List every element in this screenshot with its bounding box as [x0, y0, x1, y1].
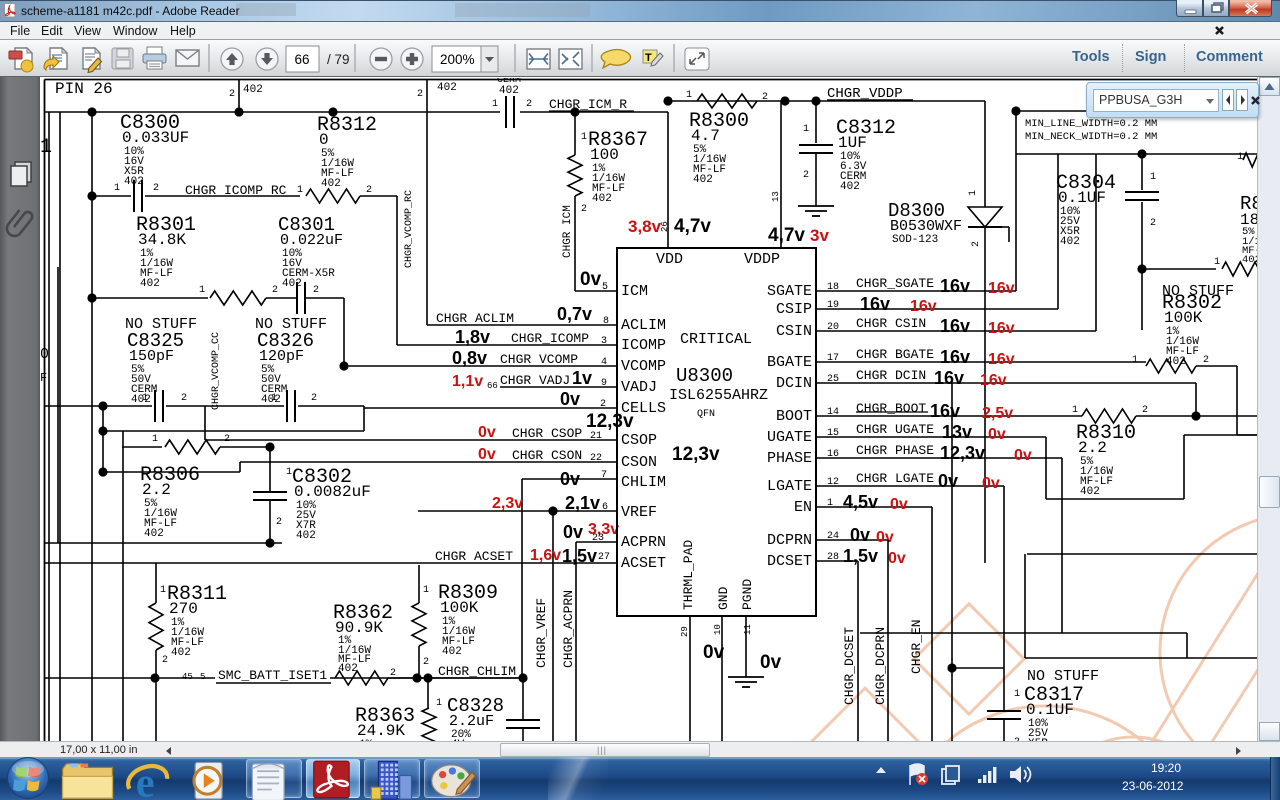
svg-text:SGATE: SGATE	[767, 283, 812, 300]
svg-text:0v: 0v	[938, 471, 958, 491]
svg-text:EN: EN	[794, 499, 812, 516]
svg-text:5: 5	[200, 672, 205, 682]
svg-text:2: 2	[224, 434, 230, 445]
svg-text:2: 2	[276, 517, 282, 528]
svg-text:2,1v: 2,1v	[565, 493, 600, 513]
svg-text:2: 2	[581, 204, 587, 215]
svg-text:5: 5	[602, 282, 608, 293]
svg-text:0v: 0v	[478, 424, 496, 441]
svg-text:0v: 0v	[1014, 447, 1032, 464]
svg-text:MIN_NECK_WIDTH=0.2 MM: MIN_NECK_WIDTH=0.2 MM	[1025, 131, 1157, 143]
svg-text:2: 2	[1203, 355, 1209, 366]
svg-text:16v: 16v	[988, 351, 1015, 368]
svg-text:1: 1	[1150, 172, 1156, 183]
svg-text:CHGR ICM: CHGR ICM	[562, 205, 574, 258]
svg-text:CHGR VCOMP: CHGR VCOMP	[500, 352, 578, 367]
svg-text:0v: 0v	[988, 426, 1006, 443]
svg-text:CHGR_BOOT: CHGR_BOOT	[856, 401, 926, 416]
svg-text:VCOMP: VCOMP	[621, 358, 666, 375]
svg-text:29: 29	[680, 626, 690, 637]
svg-text:100K: 100K	[1164, 309, 1203, 327]
svg-text:9: 9	[601, 378, 607, 389]
svg-text:16v: 16v	[940, 316, 970, 336]
svg-text:16v: 16v	[940, 347, 970, 367]
svg-text:2: 2	[313, 285, 319, 296]
svg-text:CHGR ACSET: CHGR ACSET	[435, 549, 513, 564]
svg-text:2: 2	[526, 99, 532, 110]
svg-text:200%: 200%	[440, 52, 475, 67]
svg-text:1: 1	[1237, 152, 1243, 163]
svg-text:1,5v: 1,5v	[843, 546, 878, 566]
svg-text:120pF: 120pF	[259, 348, 304, 365]
svg-text:4,7v: 4,7v	[768, 225, 805, 246]
svg-text:0v: 0v	[888, 550, 906, 567]
svg-text:ACLIM: ACLIM	[621, 317, 666, 334]
svg-text:CHGR CSOP: CHGR CSOP	[512, 426, 582, 441]
svg-text:CHGR LGATE: CHGR LGATE	[856, 471, 934, 486]
svg-text:2,5v: 2,5v	[982, 405, 1013, 422]
svg-text:B0530WXF: B0530WXF	[890, 218, 962, 235]
svg-text:13v: 13v	[942, 422, 972, 442]
svg-text:4,7v: 4,7v	[674, 216, 711, 237]
svg-text:2: 2	[417, 89, 423, 100]
svg-text:16v: 16v	[980, 372, 1007, 389]
svg-text:CHGR_EN: CHGR_EN	[909, 619, 924, 674]
svg-text:CHGR VADJ: CHGR VADJ	[500, 373, 570, 388]
svg-text:27: 27	[598, 552, 610, 563]
svg-text:CHGR_DCPRN: CHGR_DCPRN	[873, 627, 888, 705]
svg-text:16v: 16v	[940, 276, 970, 296]
svg-text:1: 1	[160, 585, 166, 596]
svg-text:CRITICAL: CRITICAL	[680, 331, 752, 348]
svg-text:1: 1	[423, 585, 429, 596]
svg-text:CHGR_SGATE: CHGR_SGATE	[856, 276, 934, 291]
svg-text:16v: 16v	[988, 280, 1015, 297]
svg-text:CHGR_VCOMP_CC: CHGR_VCOMP_CC	[211, 332, 222, 410]
svg-text:402: 402	[296, 530, 316, 542]
svg-text:100: 100	[590, 146, 619, 164]
svg-text:CHGR_VCOMP_RC: CHGR_VCOMP_RC	[404, 190, 415, 268]
svg-text:0.0082uF: 0.0082uF	[294, 483, 371, 501]
svg-text:0v: 0v	[890, 496, 908, 513]
svg-text:16v: 16v	[930, 401, 960, 421]
svg-text:VDDP: VDDP	[744, 251, 780, 268]
svg-text:402: 402	[499, 85, 519, 97]
svg-text:16v: 16v	[988, 320, 1015, 337]
svg-text:VADJ: VADJ	[621, 379, 657, 396]
svg-text:0.033UF: 0.033UF	[122, 129, 189, 147]
svg-text:2,3v: 2,3v	[492, 495, 523, 512]
svg-text:UGATE: UGATE	[767, 429, 812, 446]
svg-text:DCPRN: DCPRN	[767, 532, 812, 549]
svg-text:CHGR CSIN: CHGR CSIN	[856, 316, 926, 331]
svg-text:ISL6255AHRZ: ISL6255AHRZ	[669, 387, 768, 404]
svg-text:402: 402	[693, 174, 713, 186]
svg-text:150pF: 150pF	[129, 348, 174, 365]
svg-text:2: 2	[162, 655, 168, 666]
svg-text:CSOP: CSOP	[621, 432, 657, 449]
svg-text:8: 8	[603, 316, 609, 327]
svg-text:7: 7	[601, 470, 607, 481]
svg-text:1,5v: 1,5v	[562, 546, 597, 566]
svg-text:4,5v: 4,5v	[843, 492, 878, 512]
svg-text:PHASE: PHASE	[767, 450, 812, 467]
svg-text:1: 1	[199, 285, 205, 296]
svg-text:4: 4	[601, 357, 607, 368]
svg-text:ICOMP: ICOMP	[621, 337, 666, 354]
svg-text:2.2: 2.2	[142, 481, 171, 499]
svg-text:ACSET: ACSET	[621, 555, 666, 572]
svg-text:2.2: 2.2	[1078, 439, 1107, 457]
svg-text:402: 402	[1080, 486, 1100, 498]
svg-text:1: 1	[581, 132, 587, 143]
svg-text:1: 1	[1214, 257, 1220, 268]
svg-text:1: 1	[1014, 689, 1020, 700]
svg-text:402: 402	[840, 181, 860, 193]
svg-text:CHGR_ICM_R: CHGR_ICM_R	[549, 97, 627, 112]
svg-text:DCSET: DCSET	[767, 553, 812, 570]
svg-text:12,3v: 12,3v	[940, 443, 985, 463]
svg-text:0v: 0v	[982, 475, 1000, 492]
svg-text:402: 402	[282, 278, 302, 290]
svg-text:13: 13	[771, 191, 781, 202]
svg-text:1: 1	[686, 90, 692, 101]
svg-text:CSON: CSON	[621, 454, 657, 471]
svg-text:2: 2	[366, 185, 372, 196]
svg-text:0: 0	[319, 131, 329, 149]
svg-text:26: 26	[660, 221, 670, 232]
svg-text:24.9K: 24.9K	[357, 722, 405, 740]
svg-text:DCIN: DCIN	[776, 375, 812, 392]
svg-text:3: 3	[601, 336, 607, 347]
svg-text:THRML_PAD: THRML_PAD	[681, 540, 696, 610]
svg-text:ICM: ICM	[621, 283, 648, 300]
svg-text:0.1UF: 0.1UF	[1058, 189, 1106, 207]
svg-text:0,7v: 0,7v	[557, 304, 592, 324]
svg-text:23: 23	[592, 533, 604, 544]
svg-text:0v: 0v	[580, 269, 602, 290]
svg-text:CHGR ACLIM: CHGR ACLIM	[436, 311, 514, 326]
svg-text:/ 79: / 79	[327, 52, 350, 67]
svg-text:3,8v: 3,8v	[628, 217, 662, 236]
svg-text:0v: 0v	[560, 469, 580, 489]
svg-text:16v: 16v	[934, 368, 964, 388]
svg-text:1UF: 1UF	[838, 134, 867, 152]
svg-text:F: F	[40, 371, 47, 385]
svg-text:CHGR CSON: CHGR CSON	[512, 448, 582, 463]
svg-text:CHGR UGATE: CHGR UGATE	[856, 422, 934, 437]
svg-text:66: 66	[294, 52, 309, 67]
svg-text:402: 402	[321, 178, 341, 190]
svg-text:2: 2	[1150, 218, 1156, 229]
svg-text:0,8v: 0,8v	[452, 348, 487, 368]
svg-text:1,8v: 1,8v	[455, 327, 490, 347]
svg-text:402: 402	[144, 528, 164, 540]
svg-text:CHGR DCIN: CHGR DCIN	[856, 368, 926, 383]
svg-text:CSIN: CSIN	[776, 323, 812, 340]
svg-text:2: 2	[762, 92, 768, 103]
svg-text:VDD: VDD	[656, 251, 683, 268]
svg-text:1: 1	[803, 124, 809, 135]
svg-text:CHGR BGATE: CHGR BGATE	[856, 347, 934, 362]
svg-text:BGATE: BGATE	[767, 354, 812, 371]
svg-text:402: 402	[1060, 236, 1080, 248]
svg-text:2: 2	[311, 393, 317, 404]
svg-text:1: 1	[436, 698, 442, 709]
svg-text:402: 402	[171, 647, 191, 659]
svg-text:45: 45	[182, 672, 193, 682]
svg-text:1: 1	[40, 136, 52, 159]
svg-text:2: 2	[600, 399, 606, 410]
svg-text:CELLS: CELLS	[621, 400, 666, 417]
svg-text:1v: 1v	[572, 368, 592, 388]
svg-text:1: 1	[492, 99, 498, 110]
svg-text:1: 1	[114, 183, 120, 194]
svg-text:2: 2	[803, 170, 809, 181]
svg-text:1: 1	[152, 434, 158, 445]
svg-text:CHGR_ACPRN: CHGR_ACPRN	[561, 590, 576, 668]
svg-text:0v: 0v	[760, 652, 782, 673]
svg-text:270: 270	[169, 600, 198, 618]
svg-text:NO STUFF: NO STUFF	[1027, 668, 1099, 685]
svg-text:1: 1	[1072, 405, 1078, 416]
svg-text:2.2uF: 2.2uF	[449, 713, 494, 730]
svg-text:66: 66	[487, 381, 498, 391]
svg-text:402: 402	[338, 663, 358, 675]
svg-text:0v: 0v	[560, 389, 580, 409]
svg-text:GND: GND	[716, 586, 731, 610]
svg-text:3v: 3v	[810, 226, 829, 245]
svg-text:U8300: U8300	[676, 365, 733, 387]
svg-text:1,1v: 1,1v	[452, 373, 483, 390]
svg-text:2: 2	[272, 285, 278, 296]
svg-text:0v: 0v	[478, 446, 496, 463]
svg-text:ACPRN: ACPRN	[621, 534, 666, 551]
svg-text:402: 402	[592, 193, 612, 205]
svg-text:0v: 0v	[876, 529, 894, 546]
svg-text:12,3v: 12,3v	[672, 444, 720, 465]
svg-text:34.8K: 34.8K	[138, 231, 186, 249]
svg-text:1,6v: 1,6v	[530, 547, 561, 564]
svg-text:T: T	[645, 52, 652, 64]
svg-text:1: 1	[271, 393, 277, 404]
svg-text:2: 2	[1142, 405, 1148, 416]
svg-text:CHGR ICOMP RC: CHGR ICOMP RC	[185, 183, 287, 198]
svg-text:SOD-123: SOD-123	[892, 234, 938, 246]
svg-text:SMC_BATT_ISET1: SMC_BATT_ISET1	[218, 668, 327, 683]
svg-text:CHGR_VREF: CHGR_VREF	[534, 598, 549, 668]
svg-text:2: 2	[229, 89, 235, 100]
svg-text:6: 6	[602, 502, 608, 513]
svg-text:CHGR_DCSET: CHGR_DCSET	[842, 627, 857, 705]
svg-text:2: 2	[181, 393, 187, 404]
svg-text:0.022uF: 0.022uF	[280, 232, 343, 249]
svg-text:PGND: PGND	[740, 579, 755, 610]
svg-text:100K: 100K	[440, 599, 479, 617]
svg-text:0: 0	[40, 346, 49, 363]
svg-text:402: 402	[442, 646, 462, 658]
svg-text:22: 22	[590, 453, 602, 464]
svg-text:LGATE: LGATE	[767, 478, 812, 495]
svg-text:11: 11	[743, 624, 753, 635]
svg-text:BOOT: BOOT	[776, 408, 812, 425]
svg-text:CSIP: CSIP	[776, 301, 812, 318]
svg-text:0v: 0v	[703, 642, 725, 663]
svg-text:2: 2	[423, 657, 429, 668]
svg-text:QFN: QFN	[697, 409, 715, 420]
svg-text:1: 1	[142, 393, 148, 404]
svg-text:402: 402	[243, 84, 263, 96]
svg-text:1: 1	[1132, 355, 1138, 366]
svg-text:CHGR PHASE: CHGR PHASE	[856, 443, 934, 458]
svg-text:21: 21	[590, 431, 602, 442]
svg-text:2: 2	[971, 241, 982, 247]
svg-text:CHGR_ICOMP: CHGR_ICOMP	[511, 331, 589, 346]
svg-text:0.1UF: 0.1UF	[1026, 701, 1074, 719]
svg-text:CHLIM: CHLIM	[621, 474, 666, 491]
svg-text:1: 1	[297, 185, 303, 196]
svg-text:1: 1	[968, 190, 979, 196]
svg-text:4.7: 4.7	[691, 127, 720, 145]
svg-text:402: 402	[437, 82, 457, 94]
svg-text:16v: 16v	[860, 294, 890, 314]
svg-text:402: 402	[140, 278, 160, 290]
svg-text:MIN_LINE_WIDTH=0.2 MM: MIN_LINE_WIDTH=0.2 MM	[1025, 118, 1157, 130]
svg-text:CHGR_CHLIM: CHGR_CHLIM	[438, 664, 516, 679]
svg-text:16v: 16v	[910, 298, 937, 315]
svg-text:VREF: VREF	[621, 504, 657, 521]
svg-text:2: 2	[153, 183, 159, 194]
svg-text:PIN 26: PIN 26	[55, 80, 113, 98]
svg-text:0v: 0v	[850, 525, 870, 545]
svg-text:0v: 0v	[563, 522, 583, 542]
